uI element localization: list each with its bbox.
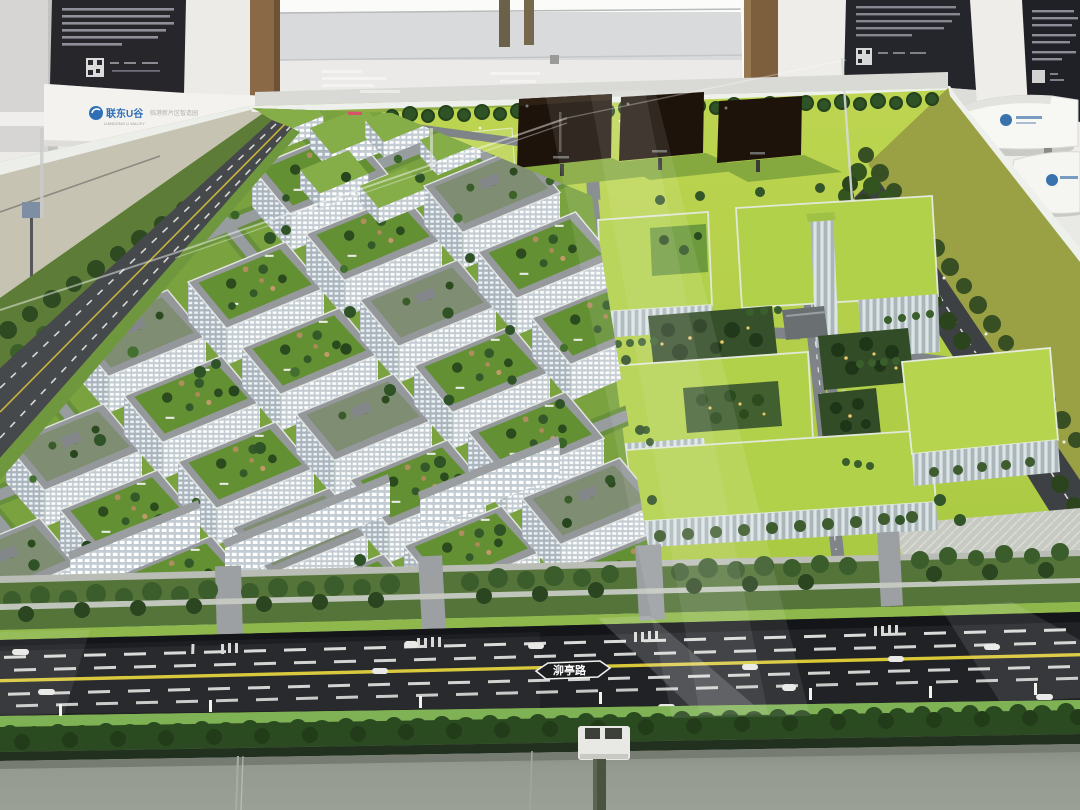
svg-text:泖亭路: 泖亭路 <box>553 663 587 677</box>
svg-text:联东U谷: 联东U谷 <box>106 107 144 120</box>
svg-text:LIANDONG U VALLEY: LIANDONG U VALLEY <box>104 121 145 126</box>
svg-text:临港新片区智造园: 临港新片区智造园 <box>150 109 198 117</box>
